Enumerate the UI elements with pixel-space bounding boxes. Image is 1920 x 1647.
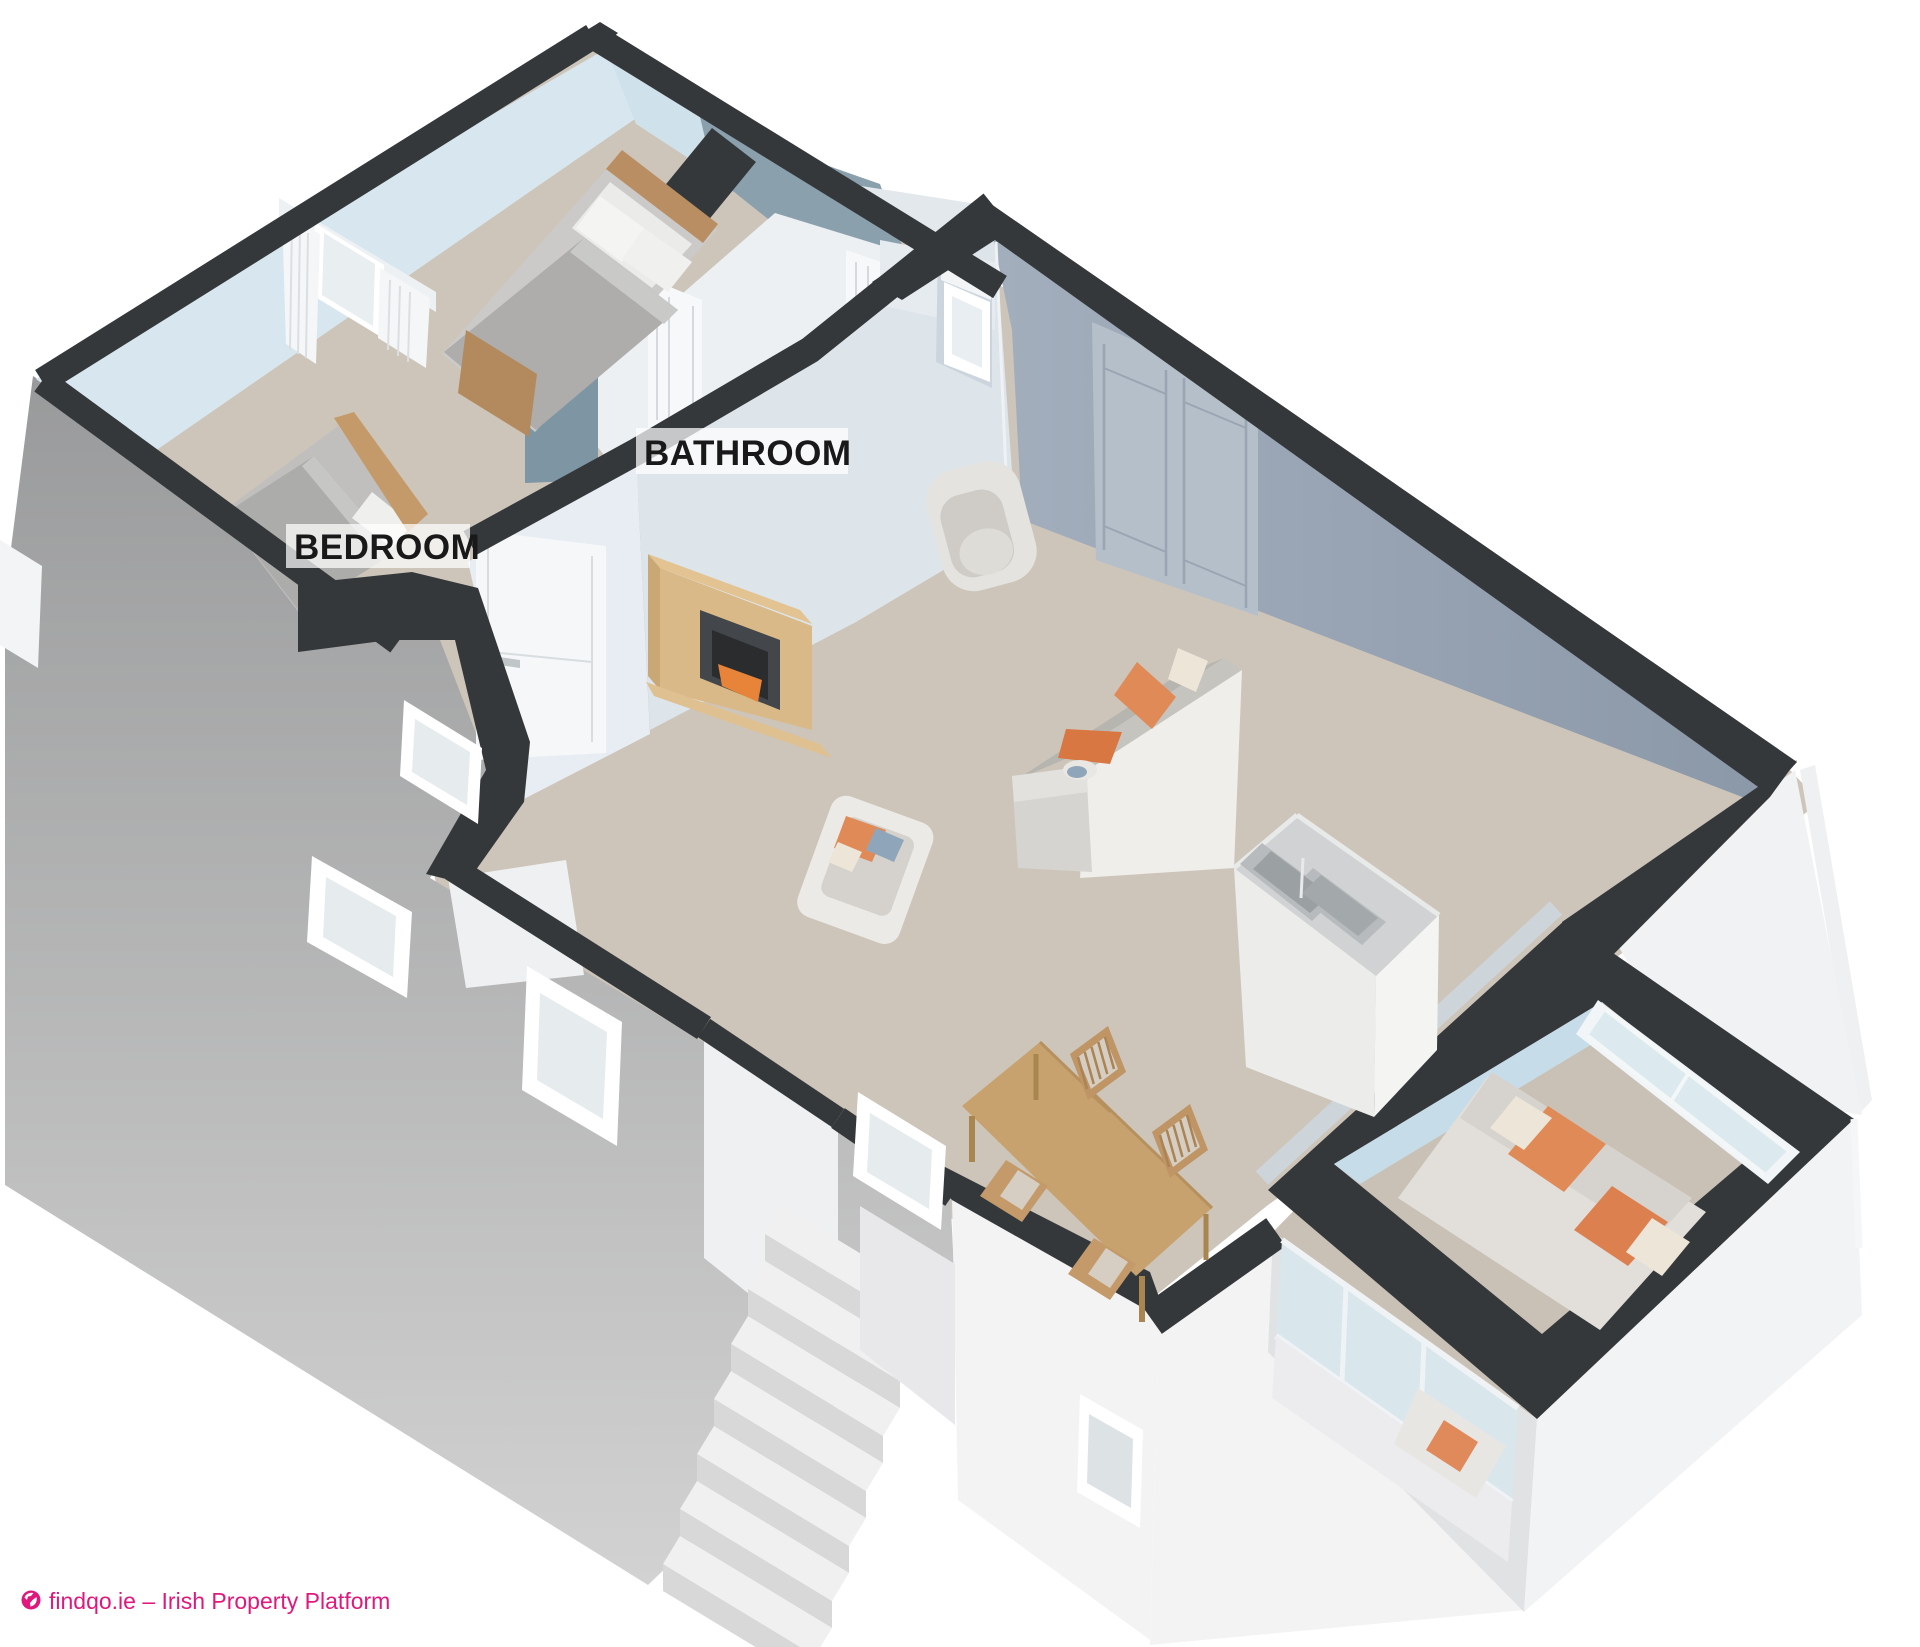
- svg-text:findqo.ie – Irish Property Pla: findqo.ie – Irish Property Platform: [49, 1588, 390, 1614]
- svg-text:BEDROOM: BEDROOM: [294, 528, 480, 567]
- svg-text:BATHROOM: BATHROOM: [644, 434, 852, 473]
